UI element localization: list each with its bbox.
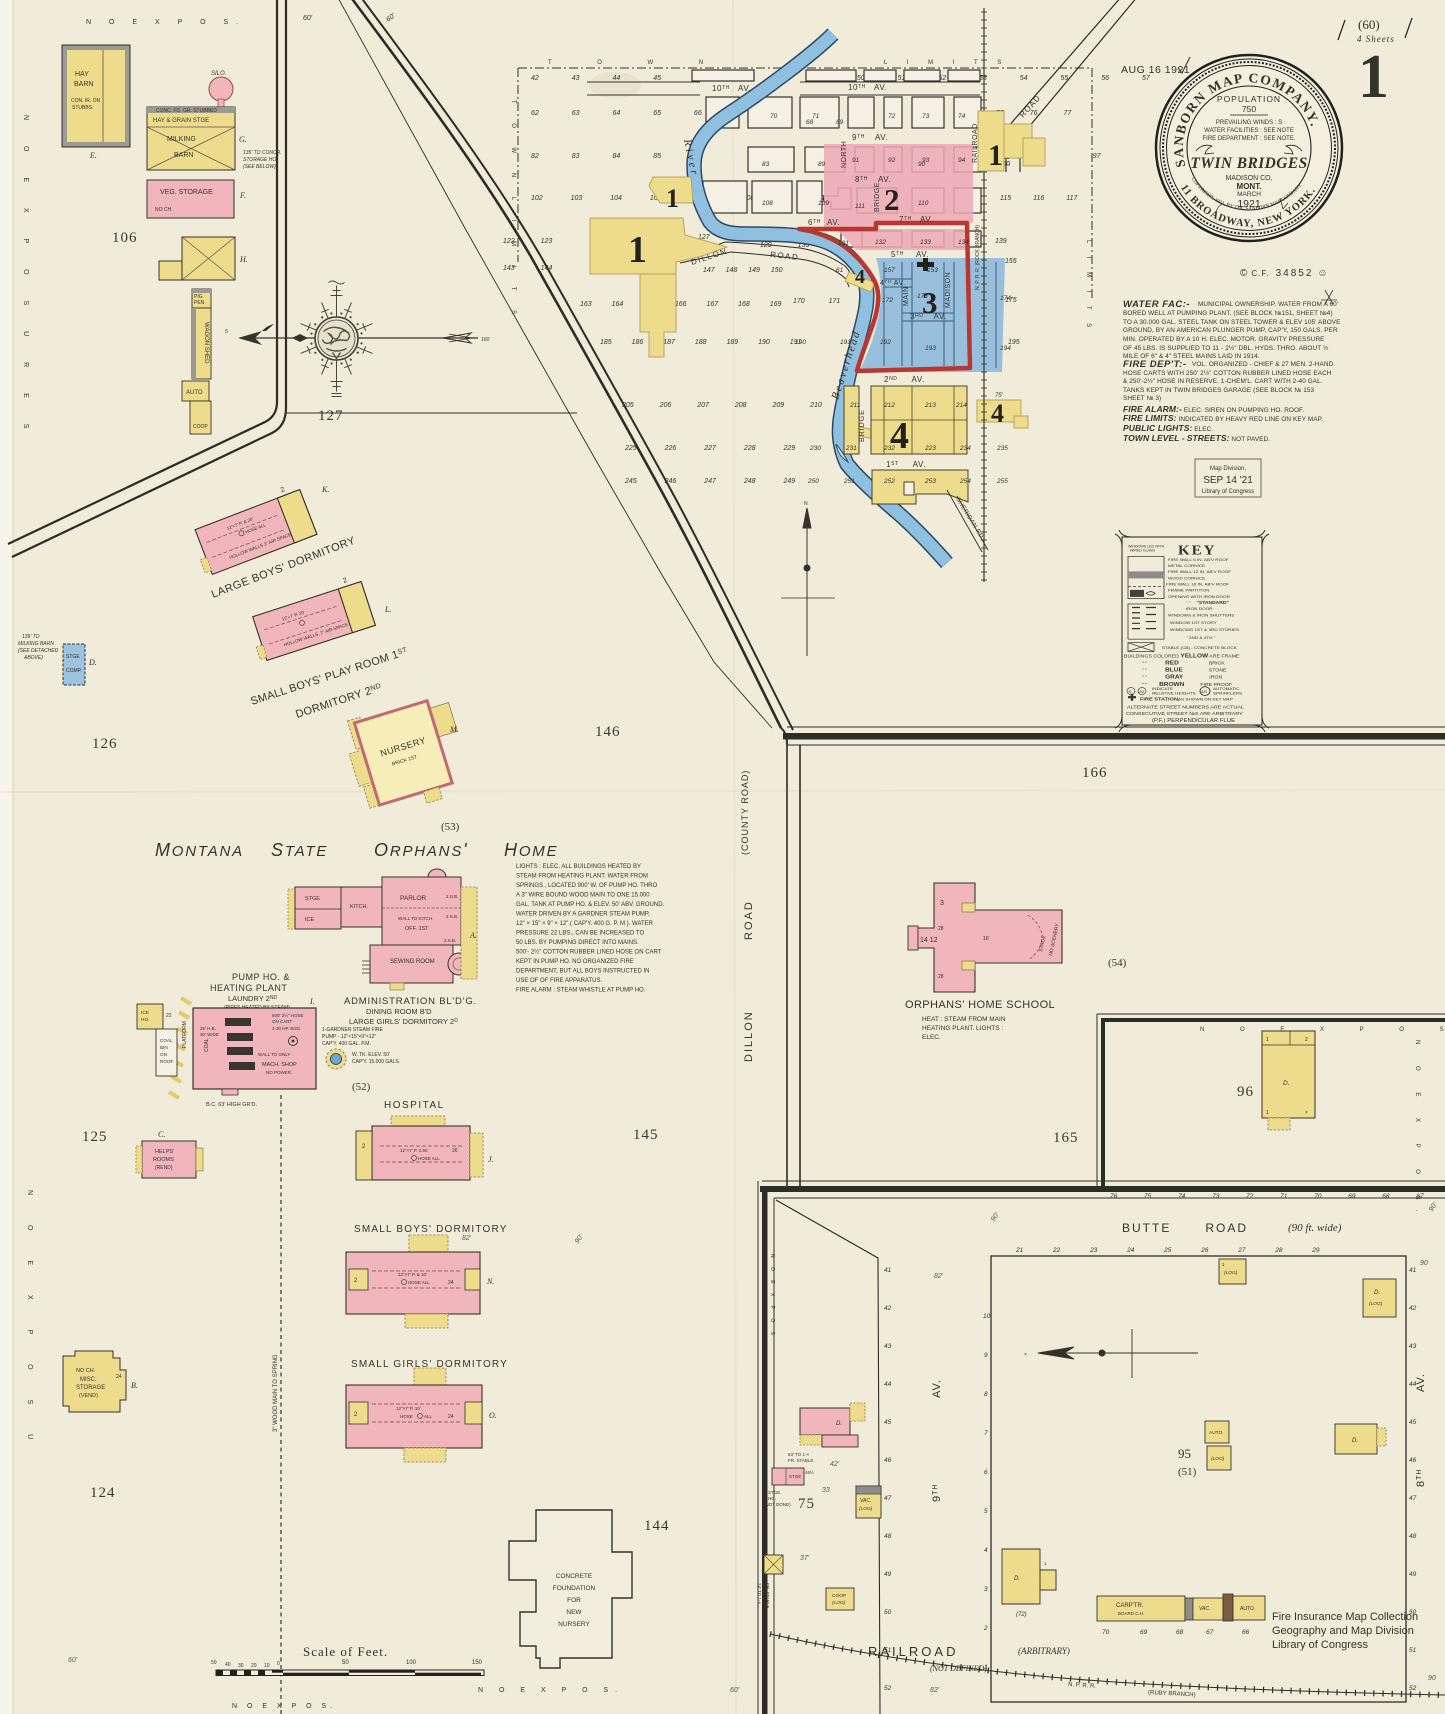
svg-text:ROAD: ROAD (743, 900, 755, 940)
svg-text:60': 60' (730, 1687, 740, 1694)
svg-text:9: 9 (984, 1352, 988, 1359)
svg-text:STORAGE HO.: STORAGE HO. (243, 157, 278, 163)
svg-text:106: 106 (112, 230, 138, 246)
svg-text:139: 139 (995, 238, 1007, 245)
svg-text:MISC.: MISC. (80, 1377, 97, 1383)
svg-text:193: 193 (925, 345, 936, 352)
svg-text:MIN. OPERATED BY A 10 H. ELEC.: MIN. OPERATED BY A 10 H. ELEC. MOTOR. GR… (1123, 336, 1325, 343)
svg-text:ORPHANS': ORPHANS' (374, 840, 468, 860)
svg-text:75 76 77: 75 76 77 (996, 110, 1072, 117)
svg-text:STGE.: STGE. (768, 1490, 782, 1495)
svg-text:MILKING: MILKING (167, 136, 196, 143)
svg-text:VEG. STORAGE: VEG. STORAGE (160, 189, 213, 196)
svg-text:AV.: AV. (1415, 1373, 1427, 1392)
svg-text:211: 211 (849, 402, 861, 409)
svg-text:500' 2½" HOSE: 500' 2½" HOSE (272, 1012, 303, 1018)
svg-text:STGE: STGE (789, 1474, 801, 1479)
svg-text:50: 50 (342, 1660, 349, 1666)
svg-text:43: 43 (1409, 1343, 1417, 1350)
svg-text:133: 133 (920, 239, 931, 246)
svg-text:HAY: HAY (75, 71, 89, 78)
svg-text:AUTO.: AUTO. (1209, 1430, 1224, 1436)
svg-text:1: 1 (988, 139, 1003, 172)
svg-text:HAY & GRAIN STGE: HAY & GRAIN STGE (153, 118, 209, 124)
svg-text:68: 68 (806, 119, 814, 126)
svg-text:20: 20 (1139, 689, 1145, 694)
svg-text:125: 125 (82, 1129, 108, 1145)
svg-text:ON CART: ON CART (272, 1019, 292, 1024)
svg-text:D.: D. (1014, 1576, 1020, 1582)
svg-text:2: 2 (884, 182, 900, 217)
svg-text:AS SHOWN ON KEY MAP: AS SHOWN ON KEY MAP (1178, 697, 1233, 702)
svg-text:230: 230 (809, 445, 821, 452)
svg-text:T O W N L I M I T S: T O W N L I M I T S (510, 100, 516, 323)
svg-text:ABOVE): ABOVE) (23, 655, 43, 661)
svg-text:44: 44 (884, 1381, 892, 1388)
svg-text:ALTERNATE STREET NUMBERS ARE A: ALTERNATE STREET NUMBERS ARE ACTUAL (1127, 705, 1244, 711)
svg-text:PEN: PEN (194, 300, 205, 306)
svg-text:OFF. 1ST: OFF. 1ST (405, 926, 429, 932)
svg-text:12"×7' P. 10': 12"×7' P. 10' (396, 1406, 421, 1411)
svg-text:ROOMS: ROOMS (153, 1157, 174, 1163)
svg-text:66: 66 (1242, 1629, 1250, 1636)
svg-text:J.: J. (488, 1155, 494, 1164)
svg-text:37': 37' (800, 1555, 810, 1562)
svg-text:131: 131 (838, 240, 849, 247)
svg-text:STGE: STGE (66, 654, 80, 660)
svg-text:61: 61 (836, 267, 844, 274)
svg-text:750: 750 (1242, 104, 1256, 114)
svg-text:12"×7' P. 2.50: 12"×7' P. 2.50 (400, 1148, 428, 1153)
svg-text:144: 144 (644, 1518, 670, 1534)
svg-text:25' H.B.: 25' H.B. (200, 1026, 216, 1031)
svg-text:12" × 15" × 9" × 12" ( CAP'Y.: 12" × 15" × 9" × 12" ( CAP'Y. 400 G. P. … (516, 921, 654, 927)
svg-text:47: 47 (884, 1495, 892, 1502)
svg-text:FOUNDATION: FOUNDATION (553, 1585, 596, 1592)
svg-text:WINDOWS 1ST & 3RD STORIES: WINDOWS 1ST & 3RD STORIES (1170, 628, 1239, 633)
svg-text:30: 30 (238, 1663, 244, 1669)
svg-text:22: 22 (166, 1013, 172, 1019)
svg-text:(51): (51) (1178, 1466, 1197, 1478)
svg-text:N O E X P O S.: N O E X P O S. (86, 19, 246, 26)
svg-text:5: 5 (984, 1508, 988, 1515)
svg-text:(54): (54) (1108, 957, 1127, 969)
svg-text:50 LBS. BY PUMPING DIRECT INT: 50 LBS. BY PUMPING DIRECT INTO MAINS. (516, 940, 639, 946)
svg-text:WALL TO KITCH.: WALL TO KITCH. (398, 916, 433, 921)
svg-text:1-30 HP. ENG.: 1-30 HP. ENG. (272, 1026, 301, 1031)
svg-text:7: 7 (984, 1430, 988, 1437)
svg-text:AV.: AV. (931, 1379, 943, 1398)
svg-text:(SEE BELOW): (SEE BELOW) (243, 164, 276, 170)
svg-text:252: 252 (883, 478, 895, 485)
svg-text:MACH. SHOP: MACH. SHOP (262, 1062, 297, 1068)
svg-text:HOSPITAL: HOSPITAL (384, 1100, 445, 1111)
svg-text:45: 45 (884, 1419, 892, 1426)
svg-text:82 83 84 85 86: 82 83 84 85 86 (531, 153, 702, 160)
svg-text:CAP'Y. 15.000 GALS.: CAP'Y. 15.000 GALS. (352, 1059, 400, 1065)
svg-text:D.: D. (1283, 1080, 1290, 1087)
svg-text:ON: ON (160, 1052, 167, 1057)
svg-text:500'- 2½" COTTON RUBBER LINED: 500'- 2½" COTTON RUBBER LINED HOSE ON CA… (516, 949, 662, 956)
svg-text:147 148 149 150: 147 148 149 150 (703, 267, 783, 274)
svg-text:24: 24 (448, 1414, 454, 1420)
svg-text:212: 212 (883, 402, 895, 409)
svg-text:40: 40 (225, 1662, 231, 1668)
svg-text:191: 191 (840, 339, 851, 346)
svg-text:2.S.B.: 2.S.B. (446, 894, 458, 899)
svg-text:LIGHTS : ELEC. ALL BUILDINGS: LIGHTS : ELEC. ALL BUILDINGS HEATED BY (516, 864, 641, 870)
svg-text:135' TO CONCR.: 135' TO CONCR. (243, 150, 282, 156)
svg-text:HOME: HOME (504, 840, 558, 860)
svg-text:173: 173 (917, 293, 928, 300)
svg-text:(LOG): (LOG) (1224, 1270, 1238, 1276)
svg-text:B.: B. (131, 1381, 138, 1390)
svg-text:ALL: ALL (424, 1414, 433, 1419)
svg-text:245 246 247 248 249: 245 246 247 248 249 (624, 478, 795, 485)
svg-text:WATER FACILITIES : SEE NOTE: WATER FACILITIES : SEE NOTE (1204, 128, 1294, 134)
svg-text:(VEND): (VEND) (79, 1393, 98, 1399)
svg-text:82': 82' (930, 1687, 940, 1694)
svg-text:(60): (60) (1358, 17, 1380, 32)
svg-text:92: 92 (888, 157, 896, 164)
svg-text:145: 145 (633, 1127, 659, 1143)
svg-text:STEAM FROM HEATING PLANT. WA: STEAM FROM HEATING PLANT. WATER FROM (516, 874, 648, 880)
svg-text:BRIDGE: BRIDGE (874, 182, 881, 212)
svg-text:MILKING BARN: MILKING BARN (18, 641, 54, 647)
svg-text:STABLE (CB) - CONCRETE BLOCK: STABLE (CB) - CONCRETE BLOCK (1162, 645, 1237, 650)
svg-text:VAC.: VAC. (860, 1498, 871, 1504)
svg-text:COMP.: COMP. (66, 668, 82, 674)
svg-text:2: 2 (983, 1625, 988, 1632)
svg-text:213: 213 (924, 402, 936, 409)
svg-text:50: 50 (884, 1609, 892, 1616)
svg-text:28: 28 (938, 926, 944, 932)
svg-text:KEY: KEY (1178, 543, 1216, 558)
svg-text:(COUNTY ROAD): (COUNTY ROAD) (740, 770, 750, 855)
svg-text:250: 250 (807, 478, 819, 485)
svg-text:SILO.: SILO. (211, 71, 226, 77)
svg-text:194: 194 (1000, 345, 1011, 352)
svg-text:OPENING WITH IRON DOOR: OPENING WITH IRON DOOR (1168, 594, 1230, 599)
svg-text:254: 254 (959, 478, 971, 485)
svg-text:10: 10 (983, 1313, 991, 1320)
svg-text:SPRINKLERS: SPRINKLERS (1213, 691, 1242, 696)
svg-text:75: 75 (798, 1496, 815, 1512)
svg-text:HEATING PLANT. LIGHTS :: HEATING PLANT. LIGHTS : (922, 1025, 1003, 1032)
svg-text:C.: C. (158, 1130, 165, 1139)
svg-text:MARCH: MARCH (1237, 191, 1261, 198)
svg-text:G.: G. (239, 135, 247, 144)
svg-text:163 164 165 166 167 168 169: 163 164 165 166 167 168 169 (580, 301, 782, 308)
svg-text:70: 70 (1102, 1629, 1110, 1636)
svg-text:MAIN: MAIN (903, 287, 910, 307)
svg-text:(90 ft. wide): (90 ft. wide) (1288, 1222, 1342, 1234)
svg-text:41: 41 (884, 1267, 892, 1274)
svg-text:90: 90 (1420, 1260, 1428, 1267)
svg-text:60': 60' (68, 1657, 78, 1664)
svg-text:96: 96 (1237, 1084, 1254, 1100)
svg-text:WAGON SHED: WAGON SHED (203, 322, 209, 364)
svg-text:NEW: NEW (566, 1609, 582, 1616)
svg-text:174: 174 (1000, 295, 1011, 302)
svg-text:METAL CORNICE: METAL CORNICE (1168, 563, 1205, 568)
svg-text:PUMP HO. &: PUMP HO. & (232, 972, 290, 982)
svg-text:4: 4 (991, 399, 1004, 428)
svg-text:26: 26 (452, 1148, 458, 1154)
svg-text:MONT.: MONT. (1237, 182, 1262, 191)
svg-text:24: 24 (116, 1374, 122, 1380)
svg-text:SMALL BOYS' DORMITORY: SMALL BOYS' DORMITORY (354, 1224, 508, 1235)
svg-text:172: 172 (882, 297, 893, 304)
svg-text:4: 4 (984, 1547, 988, 1554)
svg-text:ICE: ICE (305, 917, 315, 923)
svg-text:1-GARDNER STEAM FIRE: 1-GARDNER STEAM FIRE (322, 1027, 384, 1033)
svg-text:51: 51 (1409, 1647, 1417, 1654)
svg-text:83: 83 (762, 161, 770, 168)
svg-text:14 12: 14 12 (920, 937, 938, 944)
svg-text:(LOG): (LOG) (832, 1600, 846, 1606)
svg-text:2: 2 (1305, 1037, 1308, 1043)
svg-text:DEPARTMENT, BUT ALL BOYS INSTR: DEPARTMENT, BUT ALL BOYS INSTRUCTED IN (516, 969, 649, 975)
svg-text:8: 8 (984, 1391, 988, 1398)
svg-text:132: 132 (875, 239, 886, 246)
svg-text:FIRE WALL 12 IN. AB'V ROOF: FIRE WALL 12 IN. AB'V ROOF (1168, 569, 1231, 574)
svg-text:94: 94 (958, 157, 966, 164)
svg-text:232: 232 (883, 445, 895, 452)
svg-text:ORPHANS' HOME SCHOOL: ORPHANS' HOME SCHOOL (905, 999, 1055, 1011)
svg-text:95: 95 (1178, 1446, 1191, 1461)
svg-text:FIRE DEP'T:-: FIRE DEP'T:- (1123, 359, 1187, 370)
svg-text:(LOG): (LOG) (859, 1506, 873, 1512)
svg-text:WATER FAC:-: WATER FAC:- (1123, 299, 1190, 310)
svg-text:BIN: BIN (160, 1045, 168, 1050)
svg-text:20: 20 (251, 1663, 257, 1669)
svg-text:90: 90 (1428, 1675, 1436, 1682)
svg-text:BOARD C.H.: BOARD C.H. (1118, 1611, 1144, 1616)
svg-text:234: 234 (959, 445, 971, 452)
svg-text:NORTH: NORTH (841, 141, 848, 168)
svg-text:192: 192 (880, 339, 891, 346)
svg-text:STGE: STGE (305, 896, 320, 902)
svg-text:×: × (1024, 1352, 1027, 1358)
svg-text:166: 166 (1082, 765, 1108, 781)
svg-text:253: 253 (924, 478, 936, 485)
svg-text:111: 111 (855, 203, 865, 210)
svg-text:D.: D. (88, 658, 97, 667)
svg-text:NO POWER.: NO POWER. (266, 1070, 292, 1075)
svg-text:82': 82' (462, 1235, 472, 1242)
svg-text:COOP: COOP (832, 1593, 846, 1599)
svg-text:2.S.B.: 2.S.B. (446, 914, 458, 919)
svg-text:E.: E. (89, 151, 97, 160)
svg-text:PUMP - 12"×15"×9"×12": PUMP - 12"×15"×9"×12" (322, 1034, 376, 1040)
svg-text:Geography and Map Division: Geography and Map Division (1272, 1625, 1414, 1637)
svg-text:FRAME PARTITION: FRAME PARTITION (1168, 588, 1209, 593)
svg-text:ADMINISTRATION BL'D'G.: ADMINISTRATION BL'D'G. (344, 996, 477, 1007)
svg-text:139' TO: 139' TO (22, 634, 40, 640)
svg-text:D.: D. (836, 1421, 842, 1427)
svg-text:(52): (52) (352, 1081, 371, 1093)
svg-text:(LOG): (LOG) (1369, 1301, 1383, 1307)
svg-text:MADISON: MADISON (945, 272, 952, 308)
svg-text:1: 1 (666, 184, 679, 213)
svg-text:1: 1 (1266, 1110, 1269, 1116)
svg-text:HO.: HO. (768, 1496, 776, 1501)
svg-text:60': 60' (303, 15, 313, 22)
svg-text:PREVAILING WINDS : S: PREVAILING WINDS : S (1216, 120, 1282, 126)
svg-text:BARN: BARN (174, 152, 193, 159)
svg-text:NO CH.: NO CH. (155, 207, 173, 213)
svg-text:HEATING PLANT: HEATING PLANT (210, 983, 287, 993)
svg-text:2.S.B.: 2.S.B. (444, 938, 456, 943)
svg-text:1: 1 (628, 229, 647, 271)
svg-text:L I M I T S: L I M I T S (884, 60, 1010, 66)
svg-text:FR. STABLE: FR. STABLE (788, 1458, 813, 1463)
svg-text:102 103 104 105: 102 103 104 105 (531, 195, 662, 202)
svg-text:I.: I. (309, 997, 315, 1006)
svg-text:WIRED GLASS: WIRED GLASS (1130, 549, 1156, 553)
svg-text:CONCRETE: CONCRETE (556, 1573, 593, 1580)
svg-text:185 186 187 188 189 190 191: 185 186 187 188 189 190 191 (600, 339, 802, 346)
svg-text:91: 91 (852, 157, 860, 164)
svg-text:SPRINGS , LOCATED 900' W. OF P: SPRINGS , LOCATED 900' W. OF PUMP HO. TH… (516, 883, 658, 889)
svg-text:146: 146 (595, 724, 621, 740)
svg-text:48: 48 (884, 1533, 892, 1540)
svg-text:A.: A. (469, 931, 477, 940)
svg-text:157: 157 (884, 267, 895, 274)
svg-text:TANKS KEPT IN TWIN BRIDGES GAR: TANKS KEPT IN TWIN BRIDGES GARAGE (SEE B… (1123, 387, 1315, 394)
svg-text:4THAV.: 4THAV. (880, 279, 906, 287)
svg-text:0: 0 (277, 1661, 280, 1667)
svg-text:M.: M. (449, 725, 459, 734)
svg-text:49: 49 (884, 1571, 892, 1578)
svg-text:N O E X P O S U: N O E X P O S U (26, 1190, 33, 1453)
svg-text:42: 42 (884, 1305, 892, 1312)
svg-text:108: 108 (762, 200, 773, 207)
svg-text:126: 126 (92, 736, 118, 752)
svg-text:DINING ROOM B'D: DINING ROOM B'D (366, 1007, 432, 1016)
svg-text:76 75 74 73 72 71 70 69 68 67: 76 75 74 73 72 71 70 69 68 67 (1110, 1193, 1424, 1200)
svg-text:69: 69 (1140, 1629, 1148, 1636)
svg-text:43: 43 (884, 1343, 892, 1350)
svg-text:Fire Insurance Map Collection: Fire Insurance Map Collection (1272, 1611, 1418, 1623)
svg-text:VOL. ORGANIZED - CHIEF & 27 ME: VOL. ORGANIZED - CHIEF & 27 MEN. 2-HAND (1192, 361, 1334, 368)
svg-text:FIRE WALL 6 IN. AB'V ROOF: FIRE WALL 6 IN. AB'V ROOF (1168, 557, 1229, 562)
svg-text:48: 48 (1409, 1533, 1417, 1540)
svg-text:×: × (1305, 1110, 1308, 1116)
svg-text:124: 124 (90, 1485, 116, 1501)
svg-text:N: N (804, 501, 808, 507)
svg-text:3" WOOD MAIN TO SPRING: 3" WOOD MAIN TO SPRING (273, 1354, 279, 1432)
svg-text:HO.: HO. (141, 1017, 150, 1023)
svg-text:RELATIVE HEIGHTS: RELATIVE HEIGHTS (1152, 691, 1196, 696)
svg-text:HOSE ALL: HOSE ALL (418, 1156, 440, 1161)
svg-text:WATER DRIVEN BY A GARDNER STEA: WATER DRIVEN BY A GARDNER STEAM PUMP, (516, 912, 650, 918)
svg-text:O.: O. (489, 1411, 497, 1420)
svg-text:PLATFORM: PLATFORM (182, 1021, 188, 1048)
svg-text:AUTO.: AUTO. (1240, 1606, 1255, 1612)
svg-text:47: 47 (1409, 1495, 1417, 1502)
svg-text:AS: AS (1201, 689, 1207, 694)
svg-text:RAILROAD: RAILROAD (868, 1644, 958, 1659)
svg-text:1921: 1921 (1237, 198, 1261, 210)
svg-text:BARN: BARN (74, 81, 93, 88)
svg-text:DILLON: DILLON (743, 1010, 755, 1062)
svg-text:3: 3 (922, 285, 938, 320)
svg-text:42': 42' (830, 1461, 840, 1468)
svg-text:B.C. 63' HIGH GR'D.: B.C. 63' HIGH GR'D. (206, 1102, 257, 1108)
svg-text:COOP: COOP (193, 424, 208, 430)
svg-text:67: 67 (1206, 1629, 1214, 1636)
svg-text:" 2ND & 4TH ": " 2ND & 4TH " (1186, 635, 1216, 640)
svg-text:(LOG): (LOG) (1211, 1456, 1225, 1462)
svg-text:Library of Congress: Library of Congress (1272, 1639, 1368, 1651)
svg-text:LARGE GIRLS' DORMITORY 2D: LARGE GIRLS' DORMITORY 2D (349, 1017, 458, 1026)
svg-text:NO CH.: NO CH. (76, 1368, 96, 1374)
svg-text:46: 46 (884, 1457, 892, 1464)
svg-text:PARLOR: PARLOR (400, 895, 427, 902)
svg-text:231: 231 (845, 445, 857, 452)
svg-text:CONSECUTIVE STREET №S ARE ARBI: CONSECUTIVE STREET №S ARE ARBITRARY (1126, 711, 1243, 717)
svg-text:150: 150 (472, 1660, 483, 1666)
svg-text:(ARBITRARY): (ARBITRARY) (1018, 1646, 1070, 1656)
svg-text:TO A 30.000 GAL. STEEL TANK ON: TO A 30.000 GAL. STEEL TANK ON STEEL TOW… (1123, 319, 1341, 326)
svg-text:OF 45 LBS. IS SUPPLIED TO 11 -: OF 45 LBS. IS SUPPLIED TO 11 - 2½" DBL. … (1123, 344, 1329, 352)
svg-text:33: 33 (822, 1487, 830, 1494)
svg-text:153: 153 (927, 267, 938, 274)
svg-text:28: 28 (938, 974, 944, 980)
svg-text:CAP'Y. 400 GAL. P.M.: CAP'Y. 400 GAL. P.M. (322, 1041, 371, 1047)
svg-text:CONC. FD. GR. STUBBED: CONC. FD. GR. STUBBED (156, 108, 217, 114)
svg-text:N O E X P O S U R E S: N O E X P O S U R E S (22, 115, 29, 440)
svg-text:FIRE WALL 18 IN. AB'V ROOF: FIRE WALL 18 IN. AB'V ROOF (1166, 582, 1229, 587)
svg-text:165: 165 (1053, 1130, 1079, 1146)
svg-text:251: 251 (843, 478, 855, 485)
svg-text:24' TO 1-×: 24' TO 1-× (757, 1583, 762, 1604)
svg-text:ROOF: ROOF (160, 1059, 173, 1064)
svg-text:(SEE DETACHED: (SEE DETACHED (18, 648, 59, 654)
svg-text:1: 1 (1358, 43, 1389, 111)
svg-text:NURSERY: NURSERY (558, 1621, 590, 1628)
svg-text:WINDOWS & IRON SHUTTERS: WINDOWS & IRON SHUTTERS (1168, 613, 1234, 618)
svg-text:GROUND, BY AN AMERICAN PLUNGER: GROUND, BY AN AMERICAN PLUNGER PUMP, CAP… (1123, 327, 1338, 334)
svg-text:69: 69 (836, 119, 844, 126)
svg-text:115 116 117: 115 116 117 (1000, 195, 1078, 202)
svg-text:HOSE: HOSE (400, 1414, 413, 1419)
svg-text:3: 3 (940, 900, 944, 907)
svg-text:235: 235 (996, 445, 1008, 452)
svg-text:21 22 23 24 25 26 27 28 29: 21 22 23 24 25 26 27 28 29 (1015, 1247, 1320, 1254)
svg-text:N. P. R. R. (ROCK BRANCH): N. P. R. R. (ROCK BRANCH) (975, 225, 981, 290)
svg-text:D.: D. (1352, 1438, 1358, 1444)
svg-text:W. TK. ELEV. 50': W. TK. ELEV. 50' (352, 1052, 390, 1058)
svg-text:IRON DOOR: IRON DOOR (1186, 606, 1213, 611)
svg-text:16': 16' (983, 936, 990, 942)
svg-text:SEWING ROOM: SEWING ROOM (390, 959, 435, 965)
svg-text:F.: F. (239, 191, 246, 200)
svg-text:50: 50 (211, 1660, 217, 1666)
svg-text:WALL TO ONLY: WALL TO ONLY (258, 1052, 290, 1057)
svg-text:(53): (53) (441, 821, 460, 833)
svg-text:ICE: ICE (141, 1010, 149, 1016)
svg-text:49: 49 (1409, 1571, 1417, 1578)
svg-text:HEAT : STEAM FROM MAIN: HEAT : STEAM FROM MAIN (922, 1016, 1006, 1023)
svg-text:FR. STABLE: FR. STABLE (765, 1583, 770, 1608)
svg-text:TWIN BRIDGES: TWIN BRIDGES (1190, 155, 1307, 172)
svg-text:MADISON CO,: MADISON CO, (1225, 175, 1272, 182)
svg-text:(REND): (REND) (155, 1165, 173, 1171)
svg-text:CON. IR. ON: CON. IR. ON (71, 98, 101, 104)
